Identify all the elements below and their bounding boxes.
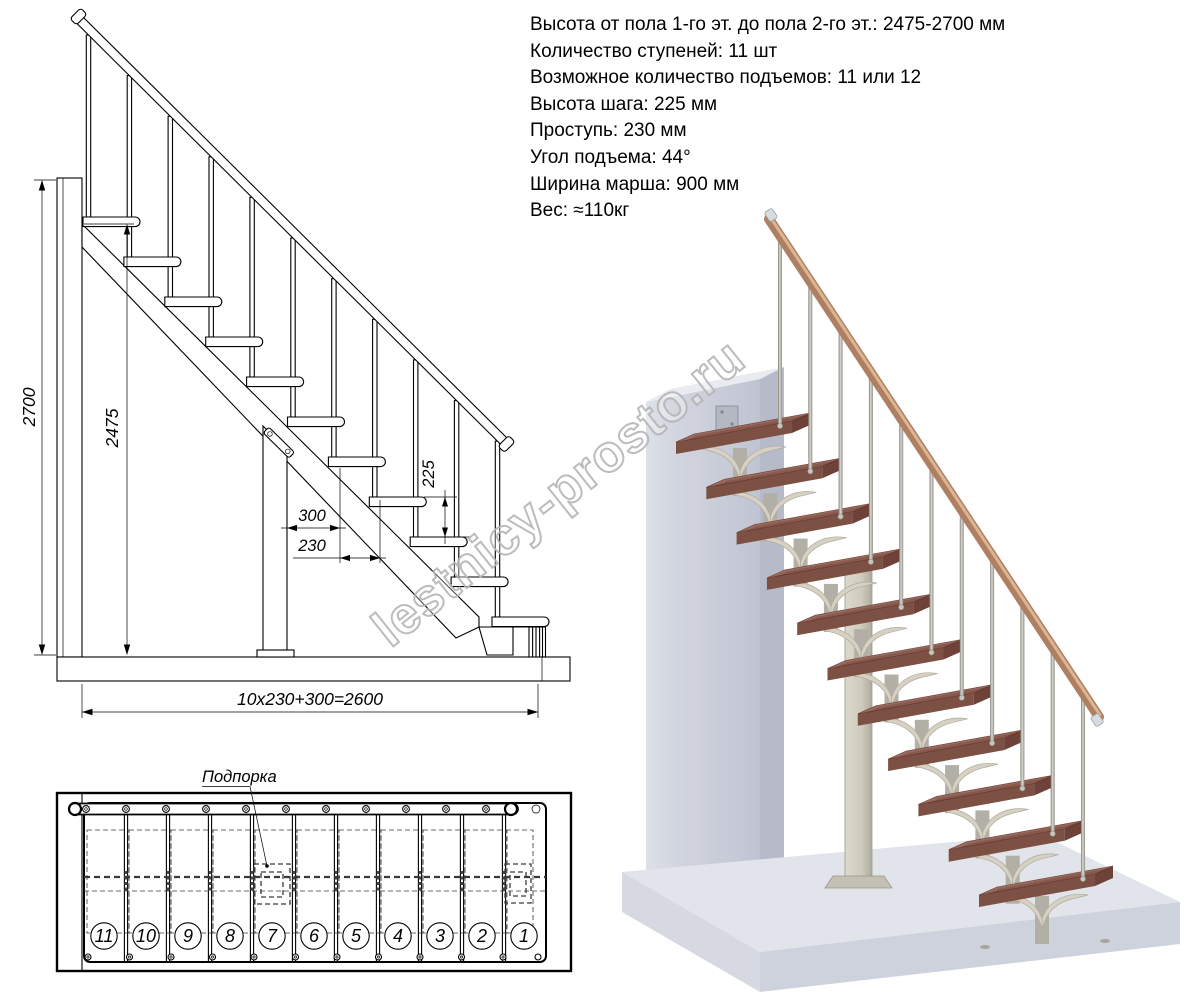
dim-stair-height-label: 2475 — [102, 408, 122, 448]
baluster-collar — [1020, 786, 1025, 791]
stair-drawing-page: 2700 2475 225 — [0, 0, 1191, 993]
step-3d — [888, 730, 1022, 771]
plan-rail-baluster — [123, 806, 130, 813]
spec-text-block: Высота от пола 1-го эт. до пола 2-го эт.… — [530, 12, 1005, 225]
baluster-2d — [291, 238, 295, 417]
plan-step-number: 4 — [393, 926, 403, 946]
spec-line-step-count: Количество ступеней: 11 шт — [530, 39, 1005, 66]
plan-rail-baluster — [203, 806, 210, 813]
support-label: Подпорка — [202, 768, 277, 786]
plan-step-number: 5 — [351, 926, 362, 946]
plan-step-number: 6 — [309, 926, 320, 946]
step-2d — [206, 337, 263, 347]
plan-foot-circle — [251, 954, 257, 960]
baluster-2d — [414, 360, 418, 537]
plan-step-number: 10 — [136, 926, 156, 946]
baluster-3d — [930, 464, 934, 652]
dim-total-height-label: 2700 — [19, 387, 39, 427]
plan-step-number: 8 — [225, 926, 235, 946]
plan-foot-circle — [293, 954, 299, 960]
plan-handrail — [69, 803, 540, 815]
plan-rail-baluster — [283, 806, 290, 813]
plan-step-number: 1 — [519, 926, 529, 946]
upper-floor-post — [57, 178, 82, 657]
spec-line-height-range: Высота от пола 1-го эт. до пола 2-го эт.… — [530, 12, 1005, 39]
plan-rail-baluster — [83, 806, 90, 813]
step-2d — [124, 257, 181, 267]
spec-line-weight: Вес: ≈110кг — [530, 198, 1005, 225]
side-view-drawing: 2700 2475 225 — [19, 8, 570, 718]
baluster-2d — [332, 279, 336, 457]
baluster-3d — [1051, 647, 1055, 833]
plan-step-number: 9 — [183, 926, 193, 946]
step1-leg — [529, 627, 533, 657]
plan-step-number: 11 — [95, 926, 114, 946]
step-2d — [369, 497, 426, 507]
baluster-3d — [990, 556, 994, 743]
dimension-total-run: 10x230+300=2600 — [82, 684, 538, 718]
baluster-collar — [1080, 876, 1085, 881]
baluster-3d — [808, 281, 812, 471]
spec-line-angle: Угол подъема: 44° — [530, 145, 1005, 172]
step-3d — [767, 549, 901, 590]
step-2d — [328, 457, 385, 467]
plan-view-drawing: Подпорка 1110987654321 — [57, 768, 571, 971]
baluster-2d — [209, 157, 213, 337]
plan-foot-circle — [376, 954, 382, 960]
spec-line-width: Ширина марша: 900 мм — [530, 172, 1005, 199]
step-3d — [858, 685, 992, 726]
plan-foot-circle — [168, 954, 174, 960]
baluster-3d — [960, 510, 964, 698]
baluster-2d — [373, 319, 377, 497]
dim-tread-label: 230 — [297, 537, 326, 555]
step-2d — [165, 297, 222, 307]
baluster-3d — [778, 236, 782, 426]
baluster-3d — [839, 327, 843, 516]
step-3d — [918, 775, 1052, 816]
plan-foot-circle — [459, 954, 465, 960]
first-floor-slab — [57, 657, 570, 681]
baluster-collar — [959, 695, 964, 700]
spec-line-step-height: Высота шага: 225 мм — [530, 92, 1005, 119]
baluster-3d — [1020, 602, 1024, 789]
spec-line-tread: Проступь: 230 мм — [530, 118, 1005, 145]
baluster-collar — [868, 559, 873, 564]
step-2d — [492, 617, 549, 627]
plan-foot-circle — [127, 954, 133, 960]
baluster-collar — [808, 469, 813, 474]
render-3d — [622, 208, 1180, 992]
plan-step-number: 7 — [267, 926, 278, 946]
plan-foot-circle — [535, 954, 541, 960]
plan-rail-baluster — [323, 806, 330, 813]
plan-foot-circle — [334, 954, 340, 960]
baluster-collar — [899, 605, 904, 610]
baluster-collar — [1050, 831, 1055, 836]
baluster-2d — [250, 197, 254, 377]
dim-first-tread-label: 300 — [298, 507, 326, 525]
baluster-3d — [899, 419, 903, 608]
baluster-2d — [168, 116, 172, 297]
baluster-3d — [1081, 693, 1085, 879]
plan-rail-baluster — [363, 806, 370, 813]
plan-rail-baluster — [443, 806, 450, 813]
dim-total-run-label: 10x230+300=2600 — [237, 689, 383, 709]
plan-rail-baluster — [403, 806, 410, 813]
plan-rail-baluster — [243, 806, 250, 813]
plan-foot-circle — [500, 954, 506, 960]
baluster-collar — [990, 741, 995, 746]
step-2d — [247, 377, 304, 387]
dimension-2700: 2700 — [19, 180, 56, 655]
plan-foot-circle — [85, 954, 91, 960]
baluster-collar — [838, 514, 843, 519]
baluster-3d — [869, 373, 873, 562]
dim-riser-label: 225 — [420, 459, 438, 488]
spec-line-rise-count: Возможное количество подъемов: 11 или 12 — [530, 65, 1005, 92]
baluster-2d — [86, 35, 90, 217]
plan-step-number: 3 — [435, 926, 445, 946]
step-2d — [288, 417, 345, 427]
baluster-collar — [777, 423, 782, 428]
plan-foot-circle — [210, 954, 216, 960]
plan-rail-baluster — [163, 806, 170, 813]
plan-rail-baluster — [483, 806, 490, 813]
step-2d — [83, 217, 140, 227]
plan-step-number: 2 — [476, 926, 487, 946]
plan-foot-circle — [417, 954, 423, 960]
baluster-collar — [929, 650, 934, 655]
